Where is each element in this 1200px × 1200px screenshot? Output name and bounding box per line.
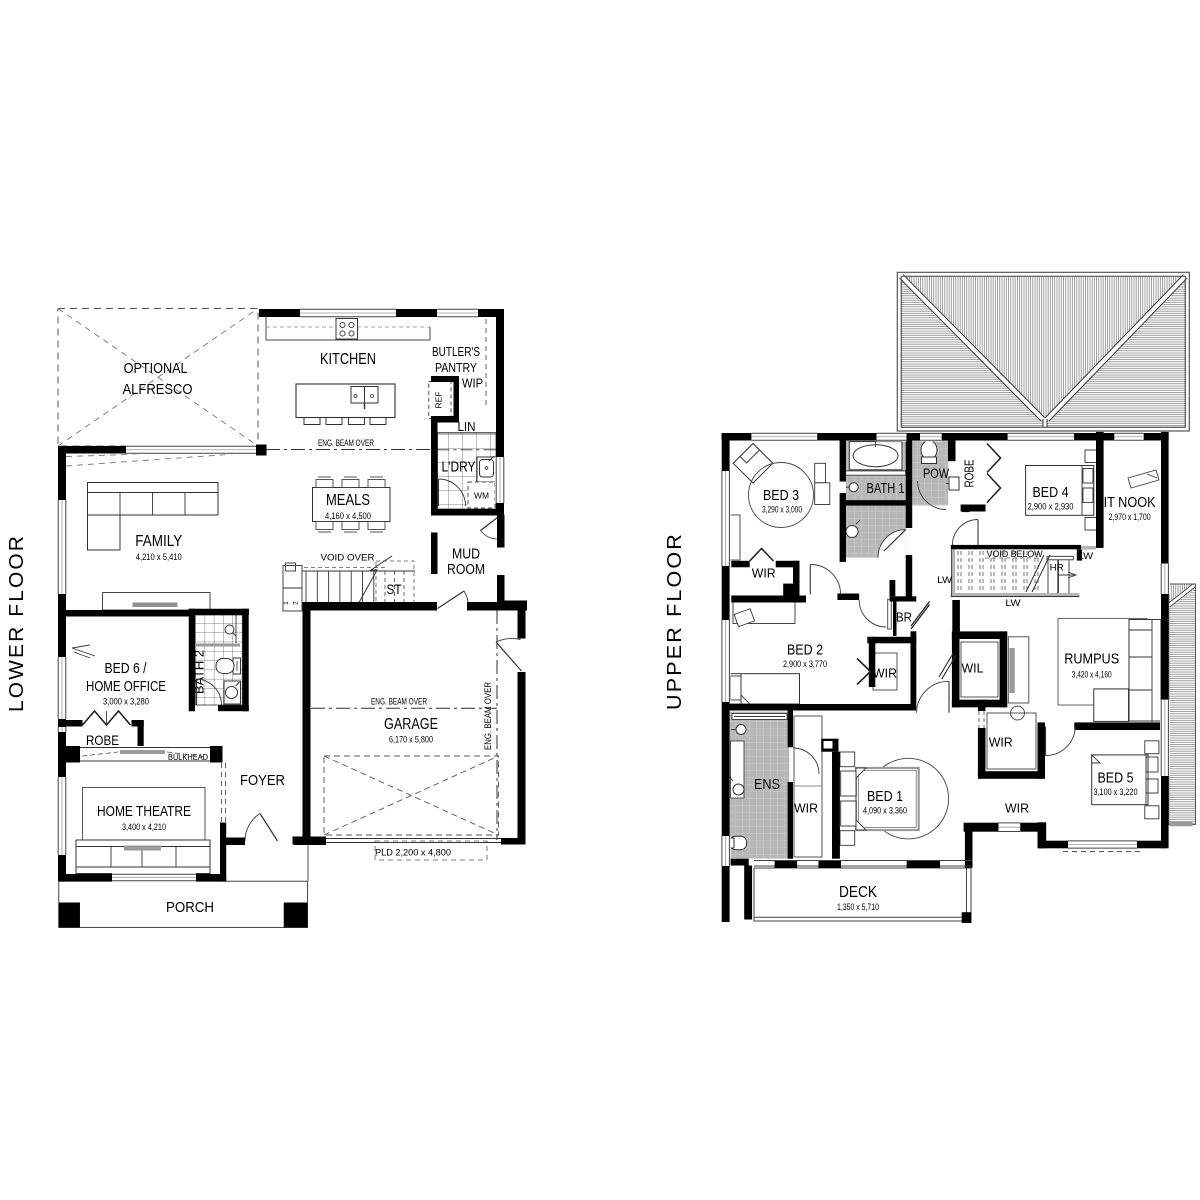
svg-text:VOID OVER: VOID OVER: [321, 553, 375, 564]
svg-text:4,160 x 4,500: 4,160 x 4,500: [325, 511, 371, 522]
svg-text:LOWER FLOOR: LOWER FLOOR: [6, 534, 28, 712]
svg-text:FAMILY: FAMILY: [135, 533, 182, 550]
svg-text:LW: LW: [937, 575, 952, 586]
svg-text:ENG. BEAM OVER: ENG. BEAM OVER: [318, 438, 374, 448]
svg-text:RUMPUS: RUMPUS: [1064, 651, 1119, 668]
svg-text:FOYER: FOYER: [240, 772, 285, 789]
svg-text:WIP: WIP: [462, 376, 483, 391]
svg-text:1: 1: [283, 601, 290, 605]
svg-text:4,210 x 5,410: 4,210 x 5,410: [136, 552, 182, 563]
svg-text:3,000 x 3,280: 3,000 x 3,280: [103, 697, 149, 708]
svg-text:PLD 2,200 x 4,800: PLD 2,200 x 4,800: [375, 848, 451, 858]
svg-text:ALFRESCO: ALFRESCO: [123, 381, 193, 398]
svg-text:WIR: WIR: [873, 666, 897, 681]
svg-text:UPPER FLOOR: UPPER FLOOR: [664, 532, 686, 710]
svg-text:POW: POW: [923, 465, 950, 481]
svg-text:4,090 x 3,360: 4,090 x 3,360: [863, 806, 907, 817]
svg-text:ROBE: ROBE: [962, 459, 977, 487]
svg-text:PORCH: PORCH: [166, 899, 214, 916]
svg-text:2,900 x 3,770: 2,900 x 3,770: [783, 659, 827, 670]
svg-text:LIN: LIN: [458, 420, 476, 434]
svg-text:2: 2: [293, 601, 300, 605]
svg-text:WIL: WIL: [962, 661, 984, 676]
svg-text:OPTIONAL: OPTIONAL: [124, 360, 188, 377]
svg-text:WIR: WIR: [989, 735, 1013, 750]
svg-text:L'DRY: L'DRY: [442, 460, 476, 476]
svg-text:WIR: WIR: [752, 566, 776, 581]
svg-text:BATH 1: BATH 1: [867, 480, 905, 497]
svg-text:ROBE: ROBE: [86, 732, 119, 748]
svg-text:ENG. BEAM OVER: ENG. BEAM OVER: [371, 697, 427, 707]
svg-text:BED 4: BED 4: [1033, 484, 1069, 501]
svg-text:WIR: WIR: [1005, 801, 1029, 816]
svg-text:KITCHEN: KITCHEN: [320, 351, 376, 368]
svg-text:BUTLER'S: BUTLER'S: [432, 344, 480, 359]
svg-text:BED 6 /: BED 6 /: [105, 660, 148, 677]
svg-text:HOME THEATRE: HOME THEATRE: [97, 803, 191, 820]
svg-text:WM: WM: [474, 491, 489, 501]
svg-text:BED 1: BED 1: [867, 788, 903, 805]
svg-text:HR: HR: [1050, 563, 1065, 573]
svg-text:ST: ST: [387, 581, 402, 597]
svg-text:ENG. BEAM OVER: ENG. BEAM OVER: [483, 682, 493, 750]
svg-text:1,350 x 5,710: 1,350 x 5,710: [837, 902, 879, 913]
svg-text:BED 3: BED 3: [763, 487, 799, 504]
svg-text:3,400 x 4,210: 3,400 x 4,210: [122, 822, 166, 833]
svg-text:GARAGE: GARAGE: [384, 716, 438, 733]
svg-text:6,170 x 5,800: 6,170 x 5,800: [389, 735, 433, 746]
svg-text:PANTRY: PANTRY: [435, 360, 477, 375]
svg-text:REF: REF: [434, 392, 444, 409]
svg-text:3,290 x 3,000: 3,290 x 3,000: [762, 505, 802, 516]
svg-text:ENS: ENS: [754, 776, 780, 793]
svg-text:2,900 x 2,930: 2,900 x 2,930: [1028, 502, 1074, 513]
svg-text:IT NOOK: IT NOOK: [1104, 494, 1156, 511]
svg-text:BED 2: BED 2: [787, 642, 823, 659]
svg-text:HOME OFFICE: HOME OFFICE: [86, 678, 166, 695]
svg-text:ROOM: ROOM: [447, 562, 485, 578]
svg-text:BR: BR: [896, 610, 912, 625]
svg-text:MUD: MUD: [452, 547, 480, 563]
svg-text:WIR: WIR: [794, 801, 818, 816]
svg-text:MEALS: MEALS: [326, 492, 370, 509]
svg-text:2,970 x 1,700: 2,970 x 1,700: [1109, 512, 1151, 523]
svg-text:LW: LW: [1078, 551, 1093, 562]
svg-text:BULKHEAD: BULKHEAD: [168, 753, 208, 762]
svg-text:3,420 x 4,160: 3,420 x 4,160: [1072, 670, 1112, 681]
svg-text:LW: LW: [1005, 598, 1020, 609]
svg-text:BED 5: BED 5: [1098, 770, 1134, 787]
svg-text:3,100 x 3,220: 3,100 x 3,220: [1094, 787, 1138, 798]
svg-text:DECK: DECK: [839, 884, 878, 901]
